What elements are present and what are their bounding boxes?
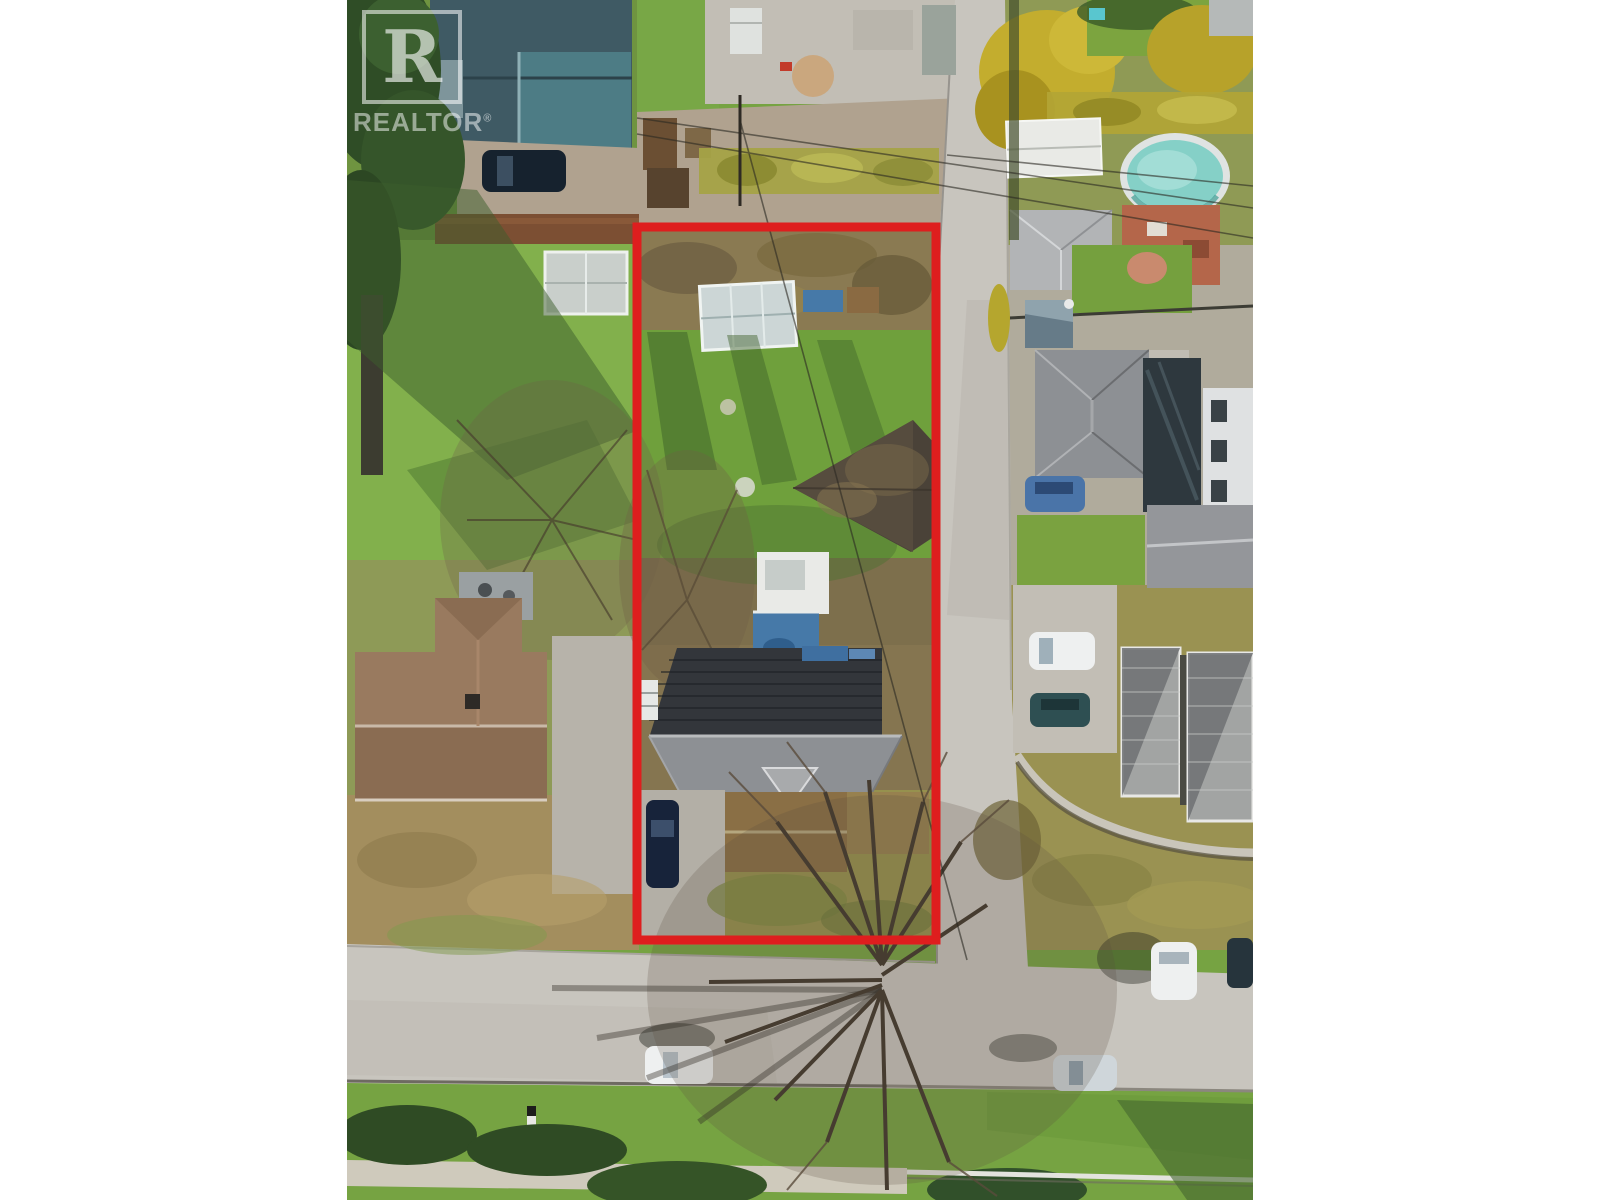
ribbed-roof-house-2 <box>1188 653 1253 821</box>
pink-shrub <box>1127 252 1167 284</box>
gray-hip-house-right <box>1035 350 1149 478</box>
lane-debris <box>643 118 677 170</box>
screenshot-canvas: R REALTOR® <box>0 0 1600 1200</box>
yellow-bush <box>988 284 1010 352</box>
parked-suv-dark <box>482 150 566 192</box>
white-modern-house <box>1203 388 1253 520</box>
roof-tarp <box>802 646 848 661</box>
main-house <box>641 646 902 806</box>
pallets <box>847 287 879 313</box>
gray-roof-house-low <box>1147 505 1253 588</box>
parked-car-driveway <box>646 800 679 888</box>
ribbed-roof-house-1 <box>1122 648 1180 796</box>
red-object <box>780 62 792 71</box>
blue-tarp-items <box>803 290 843 312</box>
aerial-photo: R REALTOR® <box>347 0 1253 1200</box>
sand-circle <box>792 55 834 97</box>
street-car-white-2 <box>1151 942 1197 1000</box>
blue-gray-shed <box>1025 299 1074 348</box>
rear-shed <box>730 8 762 54</box>
street-car-dark <box>1227 938 1253 988</box>
solar-panel <box>641 680 658 720</box>
parked-suv-white <box>1029 632 1095 670</box>
chimney <box>465 694 480 709</box>
left-neighbor-front-driveway <box>552 636 639 894</box>
